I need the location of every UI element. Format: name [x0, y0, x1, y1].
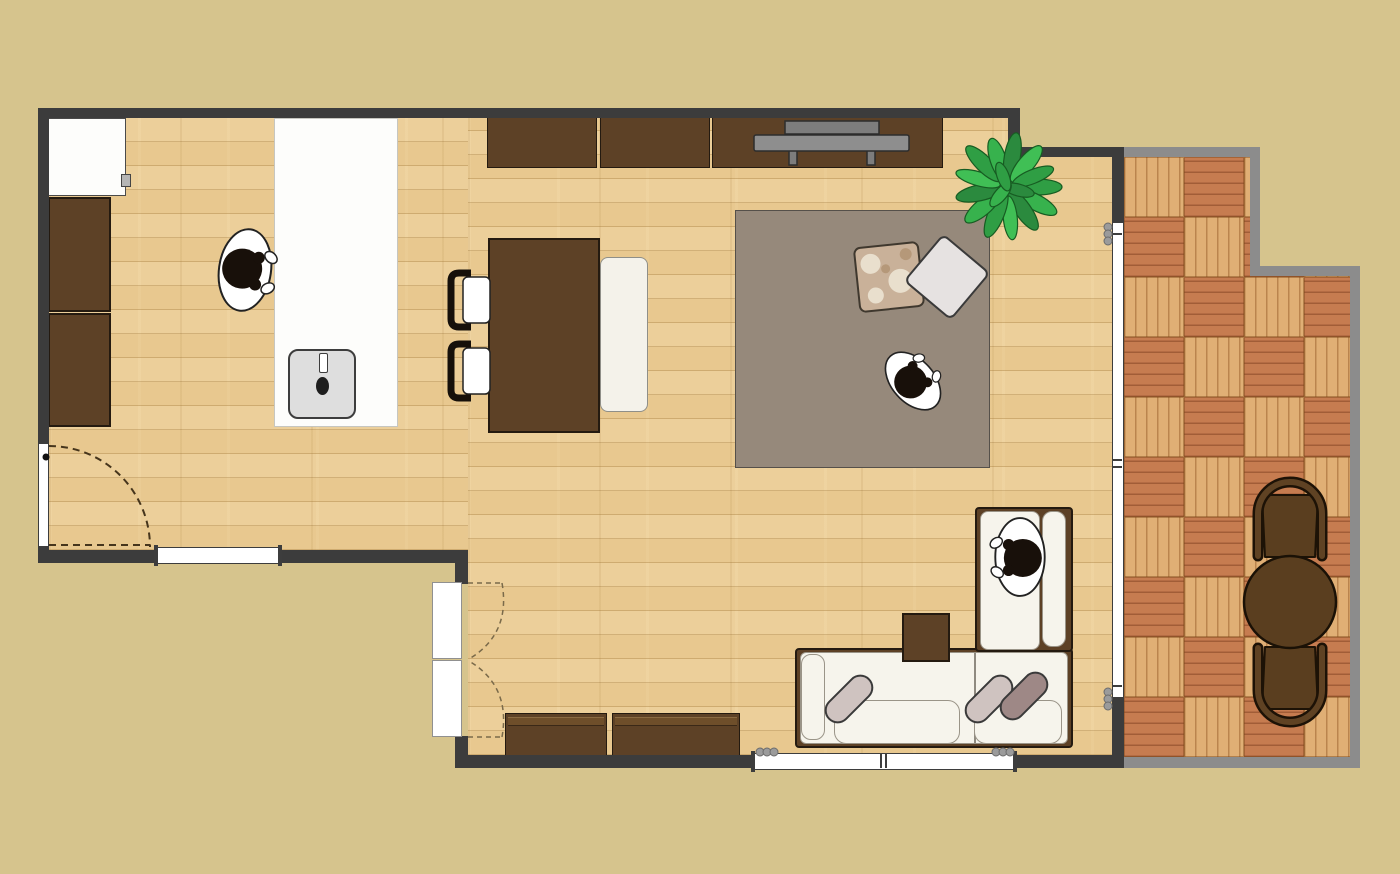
- balcony-deck-tile: [1124, 217, 1184, 277]
- sofa-chaise-back: [1042, 511, 1066, 647]
- balcony-deck-tile: [1304, 277, 1350, 337]
- kitchen-window[interactable]: [156, 547, 280, 564]
- balcony-wall-notch-h: [1250, 266, 1360, 276]
- bifold-door-panel-1[interactable]: [432, 582, 462, 659]
- balcony-deck-tile: [1244, 397, 1304, 457]
- dining-table[interactable]: [488, 238, 600, 433]
- wall-step-upper: [455, 550, 468, 584]
- wall-top: [38, 108, 1020, 118]
- balcony-deck-tile: [1244, 277, 1304, 337]
- door-mullion: [1113, 685, 1122, 687]
- low-cabinet-1[interactable]: [505, 713, 607, 757]
- kitchen-cabinet-upper[interactable]: [48, 197, 111, 312]
- balcony-deck-tile: [1184, 397, 1244, 457]
- balcony-notch-patch: [1260, 157, 1350, 266]
- fridge[interactable]: [48, 118, 126, 196]
- balcony-deck-tile: [1304, 457, 1350, 517]
- balcony-deck-tile: [1304, 577, 1350, 637]
- balcony-deck-tile: [1304, 637, 1350, 697]
- door-mullion: [1113, 466, 1122, 468]
- balcony-deck-tile: [1244, 697, 1304, 757]
- balcony-wall-bottom: [1124, 757, 1360, 768]
- dining-bench[interactable]: [600, 257, 648, 412]
- sofa-chaise-seat: [980, 511, 1040, 650]
- balcony-deck-tile: [1184, 517, 1244, 577]
- balcony-deck-tile: [1184, 637, 1244, 697]
- balcony-deck-tile: [1304, 337, 1350, 397]
- balcony-deck-tile: [1124, 157, 1184, 217]
- floral-pattern-blob: [881, 264, 891, 274]
- floral-pattern-blob: [899, 248, 912, 261]
- window-cap: [1013, 751, 1017, 772]
- faucet: [319, 353, 328, 373]
- kitchen-sink[interactable]: [288, 349, 356, 419]
- low-cabinet-top-strip: [615, 717, 737, 726]
- balcony-deck-tile: [1244, 577, 1304, 637]
- wall-cabinet-2[interactable]: [600, 116, 710, 168]
- balcony-deck-tile: [1124, 397, 1184, 457]
- balcony-deck-tile: [1124, 517, 1184, 577]
- window-cap: [278, 545, 282, 566]
- floral-pattern-blob: [867, 287, 885, 305]
- balcony-deck-tile: [1184, 277, 1244, 337]
- door-mullion: [1113, 233, 1122, 235]
- low-cabinet-top-strip: [508, 717, 604, 726]
- window-mullion: [880, 754, 882, 768]
- entry-door-leaf[interactable]: [38, 443, 49, 547]
- balcony-deck-tile: [1244, 457, 1304, 517]
- balcony-deck-tile: [1244, 337, 1304, 397]
- tv-board[interactable]: [712, 116, 943, 168]
- window-cap: [154, 545, 158, 566]
- balcony-deck-tile: [1184, 157, 1244, 217]
- balcony-deck-tile: [1184, 577, 1244, 637]
- balcony-deck-tile: [1304, 397, 1350, 457]
- kitchen-cabinet-lower[interactable]: [48, 313, 111, 427]
- balcony-deck-tile: [1124, 457, 1184, 517]
- balcony-deck-tile: [1244, 637, 1304, 697]
- balcony-deck-tile: [1184, 337, 1244, 397]
- wall-right-lower: [1112, 698, 1124, 768]
- wall-left-upper: [38, 108, 49, 443]
- floor-plan-canvas: [0, 0, 1400, 874]
- bifold-door-panel-2[interactable]: [432, 660, 462, 737]
- door-mullion: [1113, 459, 1122, 461]
- window-cap: [751, 751, 755, 772]
- balcony-wall-top: [1124, 147, 1250, 157]
- bottom-sliding-window[interactable]: [753, 753, 1015, 770]
- sofa-armrest: [801, 654, 825, 740]
- balcony-deck-tile: [1304, 517, 1350, 577]
- exterior-notch-patch: [1018, 100, 1124, 148]
- balcony-deck-tile: [1124, 277, 1184, 337]
- balcony-deck-tile: [1124, 637, 1184, 697]
- wall-step-horizontal: [1008, 147, 1124, 157]
- balcony-deck-tile: [1184, 457, 1244, 517]
- wall-cabinet-1[interactable]: [487, 116, 597, 168]
- balcony-deck-tile: [1124, 577, 1184, 637]
- balcony-deck-tile: [1124, 697, 1184, 757]
- balcony-sliding-door[interactable]: [1112, 222, 1124, 698]
- balcony-deck-tile: [1304, 697, 1350, 757]
- window-mullion: [885, 754, 887, 768]
- low-cabinet-2[interactable]: [612, 713, 740, 757]
- sink-drain: [316, 377, 329, 395]
- balcony-deck-tile: [1124, 337, 1184, 397]
- floral-pattern-blob: [860, 253, 882, 275]
- balcony-deck-tile: [1244, 517, 1304, 577]
- balcony-deck-tile: [1184, 217, 1244, 277]
- balcony-deck-tile: [1184, 697, 1244, 757]
- fridge-handle: [121, 174, 131, 187]
- balcony-wall-notch-v: [1250, 147, 1260, 276]
- balcony-wall-right: [1350, 266, 1360, 768]
- end-table[interactable]: [902, 613, 950, 662]
- wall-right-upper: [1112, 147, 1124, 224]
